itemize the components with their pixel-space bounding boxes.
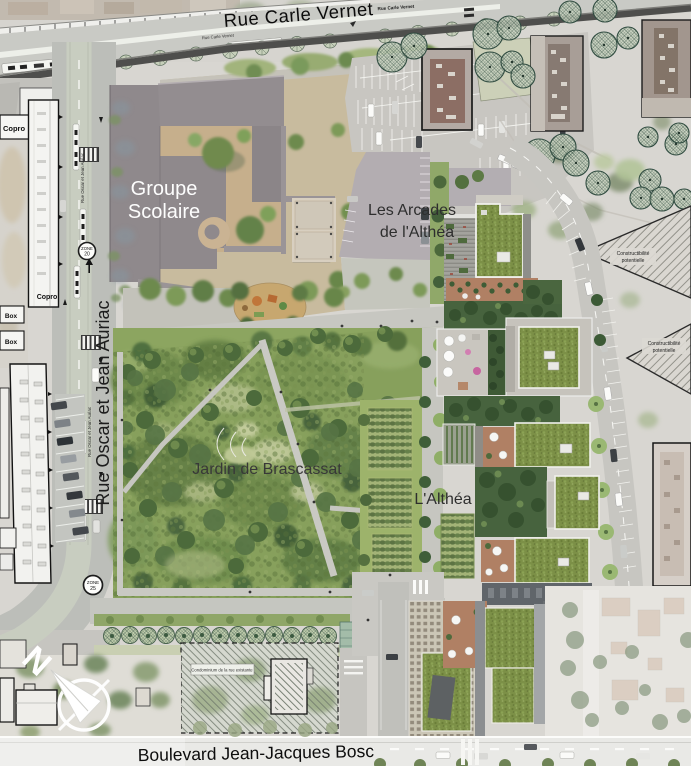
- svg-text:Copro: Copro: [3, 124, 25, 133]
- svg-text:Rue Oscar et Jean Auriac: Rue Oscar et Jean Auriac: [80, 152, 85, 203]
- svg-text:Rue Oscar et Jean Auriac: Rue Oscar et Jean Auriac: [87, 406, 92, 457]
- svg-text:L'Althéa: L'Althéa: [414, 491, 471, 508]
- svg-text:20: 20: [84, 252, 90, 258]
- svg-text:Groupe: Groupe: [131, 178, 198, 200]
- svg-text:Scolaire: Scolaire: [128, 201, 200, 223]
- svg-text:Constructibilité: Constructibilité: [648, 341, 681, 347]
- svg-text:Copro: Copro: [37, 294, 58, 301]
- svg-text:Boulevard Jean-Jacques Bosc: Boulevard Jean-Jacques Bosc: [138, 741, 375, 765]
- svg-text:Les Arcades: Les Arcades: [368, 202, 456, 219]
- svg-text:Box: Box: [5, 313, 18, 320]
- svg-text:Jardin de Brascassat: Jardin de Brascassat: [192, 461, 342, 478]
- svg-text:Condominium de la rue existant: Condominium de la rue existante: [191, 668, 253, 673]
- svg-text:ZONE: ZONE: [87, 580, 99, 585]
- svg-text:ZONE: ZONE: [81, 246, 93, 251]
- svg-text:Rue Oscar et Jean Auriac: Rue Oscar et Jean Auriac: [93, 300, 113, 505]
- svg-text:potentielle: potentielle: [622, 258, 645, 264]
- svg-text:de l'Althéa: de l'Althéa: [380, 224, 454, 241]
- svg-text:25: 25: [90, 586, 96, 592]
- svg-text:Constructibilité: Constructibilité: [617, 251, 650, 257]
- svg-text:potentielle: potentielle: [653, 348, 676, 354]
- svg-text:Box: Box: [5, 339, 18, 346]
